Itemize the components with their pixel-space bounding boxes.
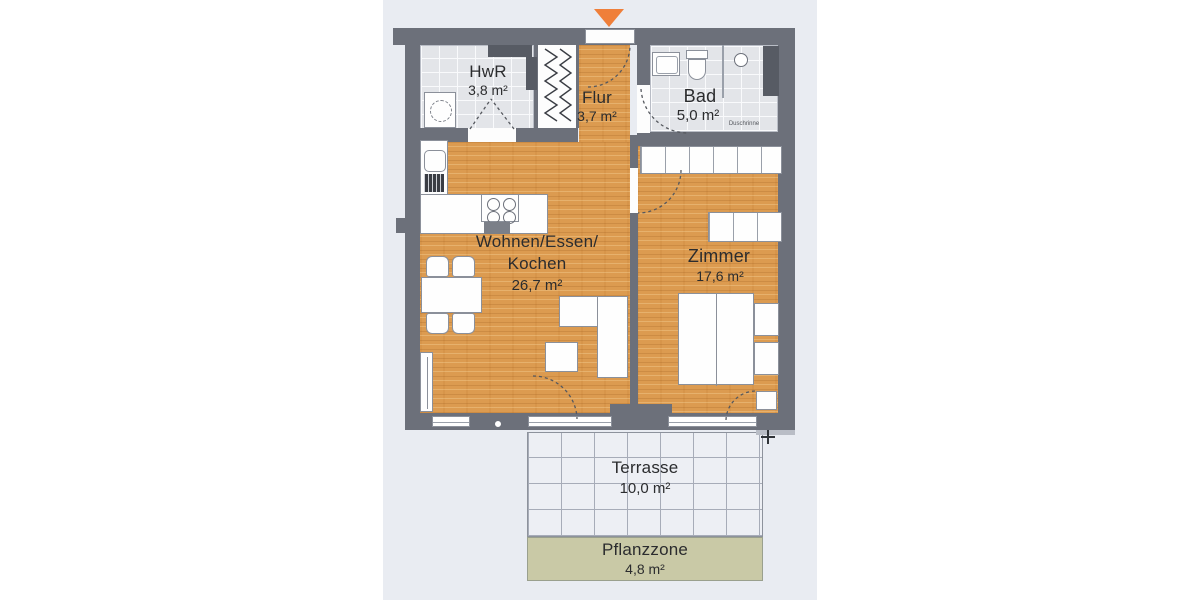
room-label-wohnen-line1: Wohnen/Essen/ [462, 232, 612, 252]
wall-left [405, 45, 420, 430]
radiator-line [427, 357, 428, 409]
bathroom-sink [652, 52, 680, 76]
radiator-living [420, 352, 433, 412]
toilet-bowl [688, 59, 706, 80]
radiator-zimmer [756, 391, 777, 410]
toilet-tank [686, 50, 708, 59]
washing-machine-drum-icon [430, 100, 452, 122]
kitchen-sink [424, 150, 446, 172]
wall-partition-foot [610, 404, 672, 416]
door-opening-zimmer [630, 168, 638, 213]
sink-basin-icon [656, 56, 678, 74]
room-label-bad: Bad [658, 86, 742, 107]
room-area-wohnen: 26,7 m² [462, 277, 612, 294]
room-area-terrasse: 10,0 m² [595, 480, 695, 497]
room-area-flur: 3,7 m² [555, 108, 639, 124]
room-area-pflanzzone: 4,8 m² [585, 561, 705, 577]
floor-plan: Duschrinne HwR 3,8 m² Flur 3,7 m² Bad 5,… [0, 0, 1200, 600]
chair [426, 256, 449, 277]
stove-hob [481, 194, 519, 222]
wall-bad-bottom [637, 132, 795, 146]
room-label-wohnen-line2: Kochen [462, 254, 612, 274]
room-area-zimmer: 17,6 m² [668, 268, 772, 284]
room-label-flur: Flur [555, 88, 639, 108]
nightstand-bottom [754, 342, 779, 375]
room-label-pflanzzone: Pflanzzone [585, 540, 705, 560]
room-area-hwr: 3,8 m² [438, 82, 538, 98]
room-label-terrasse: Terrasse [595, 458, 695, 478]
door-opening-hwr [468, 128, 516, 142]
room-area-bad: 5,0 m² [656, 107, 740, 124]
wall-bottom-step [756, 430, 795, 435]
room-label-hwr: HwR [438, 62, 538, 82]
coffee-table [545, 342, 578, 372]
entrance-marker-icon [594, 9, 624, 27]
chair [452, 313, 475, 334]
wardrobe-closet-row [640, 146, 782, 174]
terrace-door-living [528, 416, 612, 427]
window-living-left [432, 416, 470, 427]
burner-icon [503, 198, 516, 211]
dishwasher [424, 174, 444, 192]
wall-circle-symbol [494, 420, 502, 428]
bed [678, 293, 754, 385]
sofa-body [597, 296, 628, 378]
shower-head-icon [734, 53, 748, 67]
terrace-door-zimmer [668, 416, 757, 427]
chair [426, 313, 449, 334]
sofa-chaise [559, 296, 599, 327]
entrance-door [585, 29, 635, 44]
burner-icon [487, 198, 500, 211]
bad-shaft [763, 46, 779, 96]
dresser [708, 212, 782, 242]
bed-divider [716, 294, 717, 386]
room-label-zimmer: Zimmer [667, 246, 771, 267]
nightstand-top [754, 303, 779, 336]
hwr-shelf-top [488, 45, 532, 57]
wall-left-stub [396, 218, 420, 233]
